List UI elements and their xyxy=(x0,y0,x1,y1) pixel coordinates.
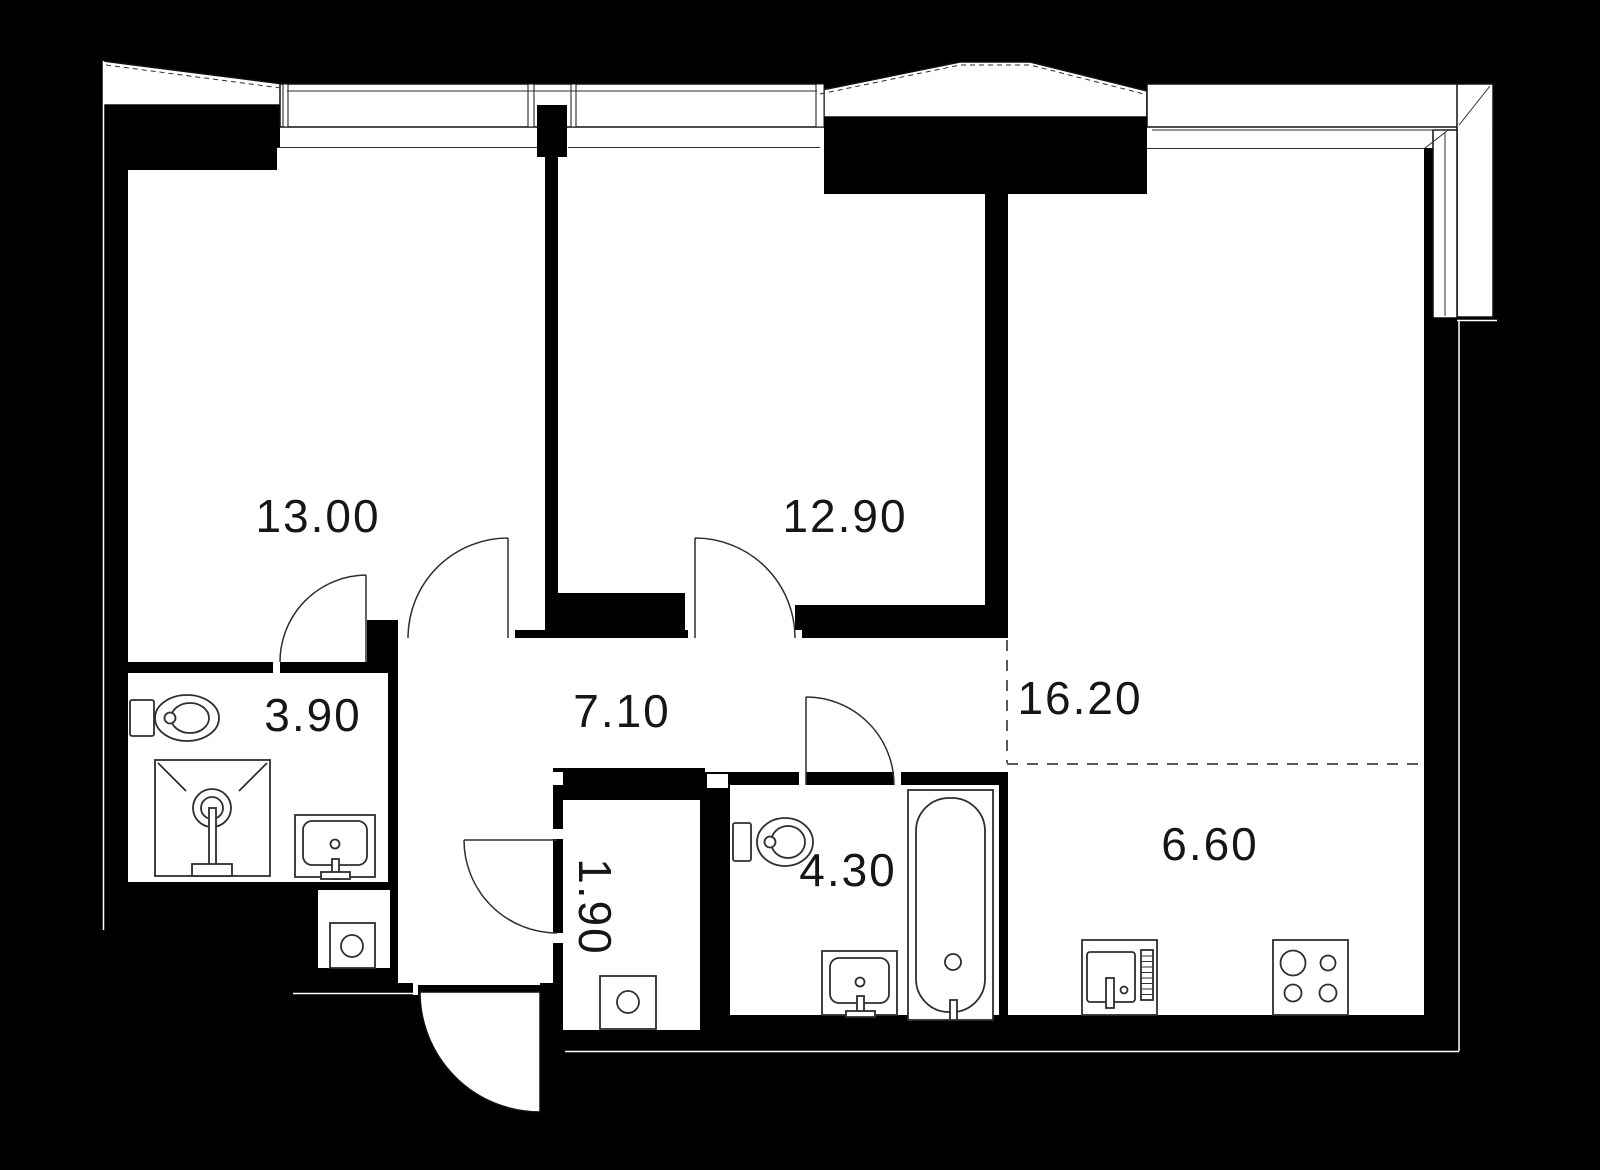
window-band-right xyxy=(1457,84,1493,317)
wall-bottom xyxy=(700,1015,1424,1051)
wall-exterior-right xyxy=(1424,318,1460,1051)
window-frame-4 xyxy=(816,84,824,127)
jamb-12 xyxy=(553,772,563,785)
floor-bedroom-1 xyxy=(128,147,545,662)
entrance-door xyxy=(420,992,540,1112)
wall-bathroom-1-top xyxy=(128,662,273,673)
wall-balcony-middle-block xyxy=(824,117,1147,194)
wall-hall-north-band xyxy=(508,630,695,638)
sink-icon xyxy=(295,815,375,879)
label-hallway: 7.10 xyxy=(573,685,671,737)
wall-living-divider xyxy=(985,194,1008,606)
wall-window-pier xyxy=(537,105,567,157)
jamb-6 xyxy=(799,772,806,785)
label-kitchen: 6.60 xyxy=(1161,818,1259,870)
floor-plan: 13.00 12.90 16.20 3.90 7.10 1.90 4.30 6.… xyxy=(0,0,1600,1170)
shower-icon xyxy=(155,760,270,876)
label-living-room: 16.20 xyxy=(1017,672,1142,724)
kitchen-sink-icon xyxy=(1082,940,1157,1015)
bathtub-icon xyxy=(908,790,993,1020)
jamb-10 xyxy=(413,983,418,995)
floor-living-room xyxy=(1008,148,1424,1015)
jamb-4 xyxy=(795,630,802,638)
sink-2-icon xyxy=(822,951,897,1017)
washing-machine-2-icon xyxy=(600,976,656,1029)
washing-machine-icon xyxy=(330,923,375,968)
wall-hall-north-east xyxy=(795,605,1008,638)
wall-bathroom-2-top-left xyxy=(730,772,806,785)
wall-wardrobe-top xyxy=(553,768,705,800)
floor-plan-drawing: 13.00 12.90 16.20 3.90 7.10 1.90 4.30 6.… xyxy=(0,0,1600,1170)
window-frame-1 xyxy=(283,84,288,127)
wall-bathroom-2-right xyxy=(999,785,1008,1051)
floor-bedroom-2 xyxy=(558,147,985,638)
label-bedroom-2: 12.90 xyxy=(782,490,907,542)
wall-wardrobe-bottom xyxy=(553,1030,700,1051)
wall-bedrooms-divider xyxy=(545,157,558,593)
label-wardrobe: 1.90 xyxy=(569,858,621,956)
window-frame-3 xyxy=(571,84,576,127)
balcony-middle xyxy=(817,62,1147,117)
wall-balcony-west-block xyxy=(105,105,277,170)
wall-wardrobe-bathroom-2 xyxy=(700,772,730,1051)
jamb-8 xyxy=(553,829,563,839)
jamb-11 xyxy=(707,774,728,788)
wall-bathroom-2-top-right xyxy=(894,772,1008,785)
floor-entry-corridor xyxy=(398,772,553,985)
jamb-5 xyxy=(273,662,280,673)
label-bedroom-1: 13.00 xyxy=(255,490,380,542)
label-bathroom-2: 4.30 xyxy=(799,844,897,896)
wall-exterior-left xyxy=(106,105,128,930)
balcony-west xyxy=(103,61,283,105)
window-frame-2 xyxy=(528,84,534,127)
toilet-icon xyxy=(130,695,219,741)
jamb-2 xyxy=(508,630,515,638)
label-bathroom-1: 3.90 xyxy=(264,689,362,741)
jamb-9 xyxy=(553,933,563,943)
wall-wardrobe-left xyxy=(553,768,563,1051)
jamb-3 xyxy=(688,630,695,638)
stove-icon xyxy=(1273,940,1348,1015)
jamb-7 xyxy=(894,772,901,785)
floor-hallway xyxy=(398,638,1008,772)
window-band-east xyxy=(1147,84,1493,127)
